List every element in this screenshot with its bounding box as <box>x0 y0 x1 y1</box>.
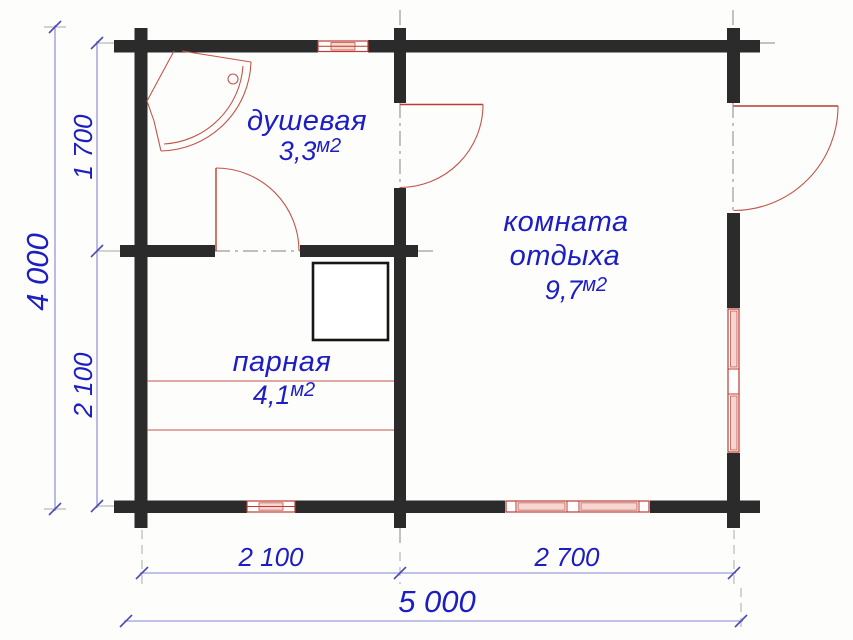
floor-plan-canvas: 4 000 1 700 2 100 2 100 2 700 5 000 душе… <box>0 0 853 640</box>
wall-top-right-segment <box>368 40 760 53</box>
wall-inner-horizontal-left <box>120 245 215 257</box>
dim-text-left-top: 1 700 <box>68 114 98 180</box>
room-label-shower: душевая <box>247 105 367 137</box>
shower-drain-icon <box>228 74 238 84</box>
window-top <box>318 41 368 52</box>
dim-text-left-bottom: 2 100 <box>68 352 98 419</box>
shower-cabin-top-edge <box>182 51 251 62</box>
shower-cabin-left-edge <box>147 101 161 151</box>
door-shower-to-steam <box>216 168 299 251</box>
room-area-rest: 9,7м2 <box>545 274 607 305</box>
room-area-shower: 3,3м2 <box>279 135 341 166</box>
shower-cabin-door <box>147 51 174 101</box>
wall-right-upper <box>727 28 740 103</box>
shower-cabin <box>147 51 251 151</box>
shower-cabin-inner-rim <box>164 66 243 144</box>
floor-plan-svg: 4 000 1 700 2 100 2 100 2 700 5 000 душе… <box>0 0 853 640</box>
wall-left <box>135 28 148 528</box>
dim-text-bottom-left: 2 100 <box>237 542 304 572</box>
room-label-steam: парная <box>233 346 332 378</box>
centerlines <box>96 10 780 628</box>
window-bottom-steam <box>247 501 295 512</box>
stove <box>313 263 388 340</box>
window-bottom-rest <box>506 501 649 512</box>
door-swing-arc <box>734 106 839 211</box>
walls <box>114 28 760 528</box>
window-right <box>728 309 739 452</box>
room-area-steam: 4,1м2 <box>253 379 315 410</box>
door-swing-arc <box>216 168 299 251</box>
wall-top-left-segment <box>114 40 318 53</box>
door-shower-to-rest <box>400 105 483 188</box>
wall-bottom-right-segment <box>650 501 760 514</box>
dim-text-overall-height: 4 000 <box>20 233 55 311</box>
wall-right-middle <box>727 213 740 308</box>
wall-inner-vertical-lower <box>394 188 406 528</box>
room-label-rest-line2: отдыха <box>510 240 621 272</box>
door-swing-arc <box>400 105 483 188</box>
wall-right-lower <box>727 453 740 528</box>
dim-text-bottom-right: 2 700 <box>533 542 600 572</box>
room-label-rest-line1: комната <box>503 206 628 238</box>
wall-inner-vertical-upper <box>394 28 406 103</box>
wall-inner-horizontal-right <box>300 245 418 257</box>
shower-cabin-outer-rim <box>161 62 251 151</box>
wall-bottom-left-segment <box>114 501 247 514</box>
door-entrance <box>734 106 839 211</box>
dim-text-overall-width: 5 000 <box>398 584 476 619</box>
